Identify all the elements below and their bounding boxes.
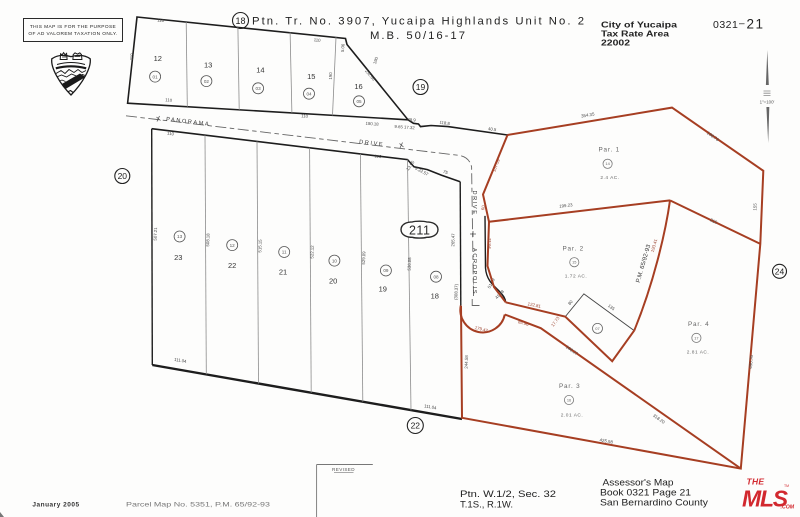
- svg-text:111.04: 111.04: [174, 357, 188, 364]
- svg-text:03: 03: [256, 86, 262, 91]
- svg-text:T.1S., R.1W.: T.1S., R.1W.: [460, 500, 513, 511]
- svg-text:Par. 1: Par. 1: [599, 147, 621, 154]
- svg-text:22: 22: [228, 261, 236, 270]
- svg-text:17: 17: [694, 335, 698, 340]
- svg-text:508.18: 508.18: [205, 233, 210, 247]
- svg-text:Ptn. Tr. No. 3907, Yucaipa Hig: Ptn. Tr. No. 3907, Yucaipa Highlands Uni…: [252, 16, 584, 28]
- svg-text:49.9: 49.9: [407, 117, 416, 123]
- svg-text:15: 15: [307, 72, 315, 81]
- svg-text:180.18: 180.18: [365, 121, 379, 127]
- svg-text:17.73: 17.73: [550, 315, 561, 327]
- svg-text:354.35: 354.35: [581, 111, 596, 118]
- svg-text:19: 19: [379, 285, 387, 294]
- svg-text:Par. 2: Par. 2: [563, 246, 585, 253]
- svg-text:16: 16: [354, 82, 362, 91]
- svg-text:110: 110: [157, 17, 165, 23]
- svg-text:85.96: 85.96: [517, 319, 529, 327]
- svg-text:9.22.57: 9.22.57: [414, 166, 430, 177]
- svg-text:40.5: 40.5: [488, 126, 498, 132]
- svg-text:1″=100′: 1″=100′: [760, 100, 775, 105]
- svg-text:13: 13: [177, 234, 183, 239]
- svg-text:5.06: 5.06: [340, 43, 346, 52]
- svg-text:.COM: .COM: [781, 505, 795, 511]
- svg-text:24: 24: [775, 266, 785, 276]
- svg-text:507.21: 507.21: [153, 227, 158, 241]
- svg-text:01: 01: [153, 74, 159, 79]
- svg-text:110: 110: [165, 97, 173, 103]
- svg-text:04: 04: [306, 91, 312, 96]
- svg-text:City of Yucaipa: City of Yucaipa: [601, 21, 678, 30]
- svg-text:110: 110: [167, 131, 175, 137]
- svg-text:80: 80: [567, 299, 574, 306]
- svg-text:22: 22: [411, 421, 421, 431]
- svg-text:Tax Rate Area: Tax Rate Area: [601, 30, 670, 39]
- svg-text:San Bernardino County: San Bernardino County: [600, 498, 708, 509]
- svg-text:110: 110: [301, 113, 309, 119]
- svg-text:96.12: 96.12: [487, 237, 492, 249]
- svg-text:08: 08: [433, 274, 439, 279]
- svg-text:18: 18: [431, 292, 439, 301]
- svg-text:199.23: 199.23: [559, 202, 573, 208]
- svg-text:13: 13: [204, 61, 212, 70]
- svg-text:02: 02: [204, 79, 210, 84]
- svg-text:Ptn. W.1/2, Sec. 32: Ptn. W.1/2, Sec. 32: [460, 489, 556, 500]
- svg-text:20: 20: [329, 277, 337, 286]
- svg-text:190: 190: [328, 72, 333, 80]
- svg-text:PANORAMA: PANORAMA: [166, 117, 211, 128]
- svg-text:14: 14: [605, 161, 610, 166]
- svg-text:ACROPOLIS: ACROPOLIS: [471, 248, 477, 295]
- svg-text:(308.37): (308.37): [453, 283, 459, 300]
- svg-text:Par. 4: Par. 4: [688, 321, 710, 328]
- svg-text:244.58: 244.58: [464, 355, 469, 369]
- svg-text:22002: 22002: [601, 39, 631, 48]
- svg-text:536.08: 536.08: [407, 257, 412, 271]
- svg-text:0321: 0321: [713, 19, 738, 31]
- svg-text:111.04: 111.04: [424, 403, 438, 410]
- svg-text:January 2005: January 2005: [32, 502, 79, 509]
- svg-text:11: 11: [282, 250, 287, 255]
- svg-text:14: 14: [256, 66, 264, 75]
- svg-text:515.15: 515.15: [257, 239, 262, 253]
- svg-text:12: 12: [230, 243, 236, 248]
- svg-text:110: 110: [374, 153, 382, 159]
- svg-text:135: 135: [607, 303, 616, 312]
- svg-text:155: 155: [752, 203, 757, 211]
- svg-text:20: 20: [118, 171, 128, 181]
- svg-text:09: 09: [383, 268, 389, 273]
- svg-text:18: 18: [235, 16, 245, 26]
- svg-text:THIS MAP IS FOR THE PURPOSE: THIS MAP IS FOR THE PURPOSE: [30, 24, 116, 30]
- svg-text:23: 23: [174, 253, 182, 262]
- svg-text:211: 211: [409, 223, 430, 237]
- svg-text:75: 75: [442, 169, 449, 175]
- svg-text:Parcel Map No. 5351, P.M. 65/9: Parcel Map No. 5351, P.M. 65/92-93: [126, 502, 270, 509]
- svg-text:118.8: 118.8: [439, 120, 451, 126]
- svg-text:110: 110: [313, 37, 321, 43]
- svg-text:DRIVE: DRIVE: [471, 190, 477, 215]
- svg-text:522.12: 522.12: [309, 245, 314, 259]
- svg-text:12: 12: [154, 54, 162, 63]
- svg-text:2.01 AC.: 2.01 AC.: [561, 413, 583, 419]
- svg-text:265.47: 265.47: [450, 233, 455, 247]
- svg-text:137.59: 137.59: [491, 158, 501, 173]
- svg-text:2.81 AC.: 2.81 AC.: [687, 350, 709, 356]
- svg-text:19: 19: [416, 82, 426, 92]
- svg-text:10: 10: [332, 258, 338, 263]
- svg-text:21: 21: [747, 17, 765, 32]
- svg-text:490.76: 490.76: [748, 354, 754, 368]
- svg-text:1.72 AC.: 1.72 AC.: [565, 274, 587, 280]
- svg-text:07: 07: [595, 326, 600, 331]
- svg-text:Par. 3: Par. 3: [559, 383, 581, 390]
- svg-text:529.09: 529.09: [361, 251, 366, 265]
- svg-text:P.M. 65/92-93: P.M. 65/92-93: [636, 243, 653, 283]
- svg-text:21: 21: [279, 267, 287, 276]
- svg-text:05: 05: [356, 99, 362, 104]
- svg-text:OF AD VALOREM TAXATION ONLY.: OF AD VALOREM TAXATION ONLY.: [28, 31, 117, 37]
- svg-text:REVISED: REVISED: [332, 467, 355, 472]
- svg-text:TM: TM: [784, 484, 789, 488]
- svg-text:16: 16: [567, 397, 571, 402]
- svg-text:–: –: [739, 19, 745, 30]
- svg-text:190: 190: [372, 56, 379, 65]
- svg-text:2.4 AC.: 2.4 AC.: [600, 175, 619, 181]
- svg-text:15: 15: [572, 260, 576, 265]
- svg-text:110: 110: [129, 53, 135, 61]
- svg-text:M.B. 50/16-17: M.B. 50/16-17: [370, 30, 465, 42]
- svg-text:DRIVE: DRIVE: [359, 139, 385, 148]
- svg-text:9.65 17.32: 9.65 17.32: [394, 124, 415, 130]
